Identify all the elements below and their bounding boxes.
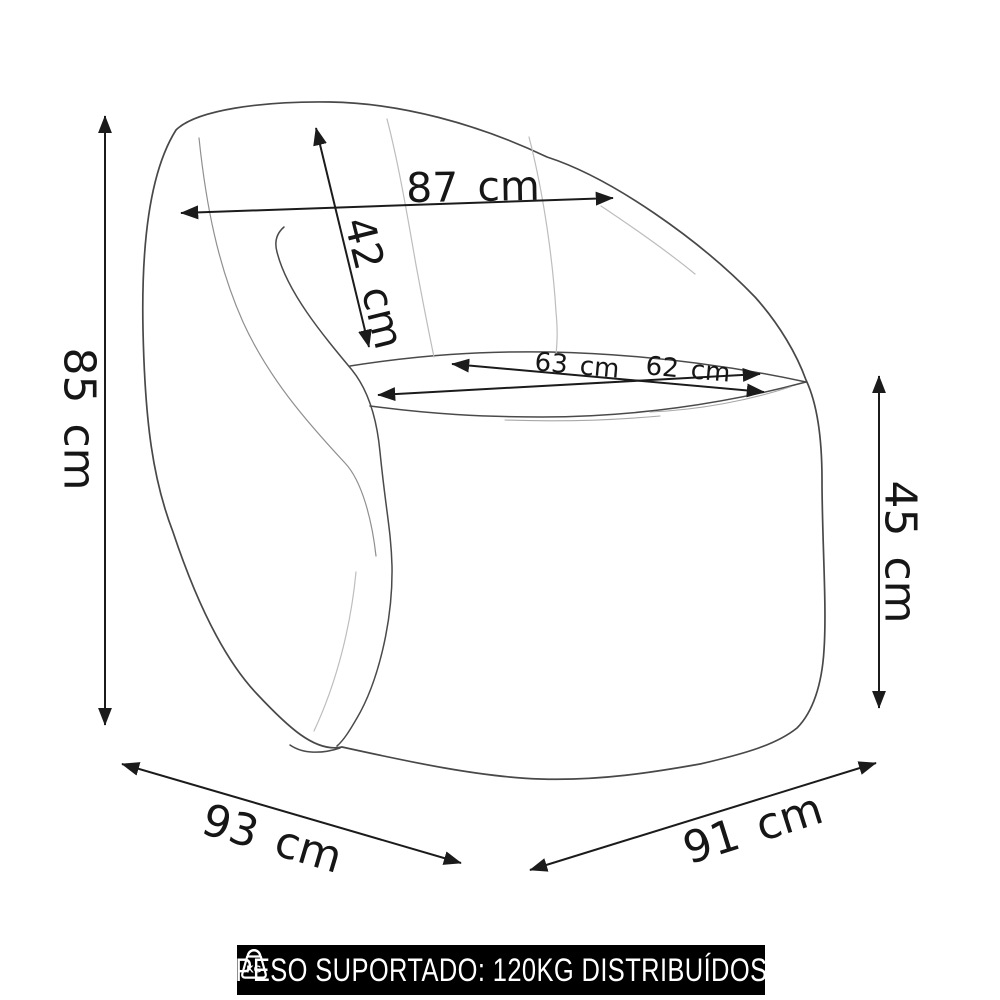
total-height-label: 85 cm (54, 347, 105, 490)
backrest-seam-right (601, 206, 695, 274)
back-width-label: 87 cm (406, 162, 541, 212)
seat-height-label: 45 cm (875, 480, 926, 623)
back-width-arrow (181, 198, 613, 213)
seat-depth-label: 63 cm (533, 347, 620, 384)
backrest-height-label: 42 cm (335, 212, 414, 353)
dimension-seat-height: 45 cm (875, 376, 926, 708)
back-panel-seam (199, 138, 376, 556)
base-width-label: 91 cm (677, 783, 829, 875)
weight-capacity-banner: KG PESO SUPORTADO: 120KG DISTRIBUÍDOS (237, 945, 765, 995)
armrest-seam (314, 572, 356, 731)
seat-cushion-front-edge (370, 382, 806, 417)
dimension-annotations: 85 cm 87 cm 42 cm 63 cm 62 cm 45 cm (54, 116, 926, 884)
product-dimension-diagram: 85 cm 87 cm 42 cm 63 cm 62 cm 45 cm (0, 0, 1000, 1000)
dimension-total-height: 85 cm (54, 116, 106, 725)
dimension-backrest-height: 42 cm (316, 128, 413, 354)
armchair-dimension-drawing: 85 cm 87 cm 42 cm 63 cm 62 cm 45 cm (0, 0, 1000, 1000)
banner-text: PESO SUPORTADO: 120KG DISTRIBUÍDOS (235, 950, 767, 989)
dimension-back-width: 87 cm (181, 162, 613, 213)
dimension-base-width: 91 cm (530, 763, 876, 875)
dimension-base-depth: 93 cm (122, 764, 461, 884)
